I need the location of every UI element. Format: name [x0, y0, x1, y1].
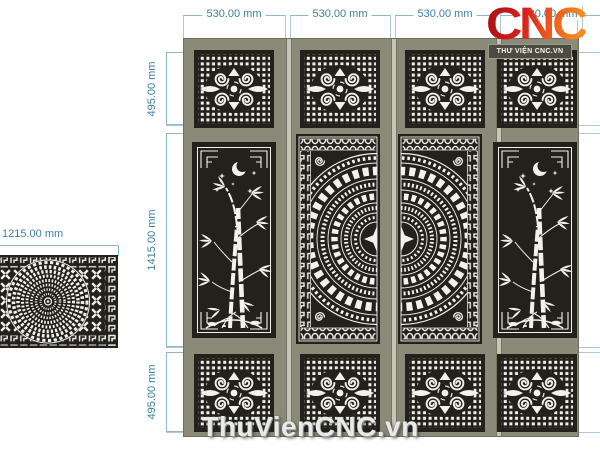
dimension-stub	[166, 52, 183, 53]
bamboo-panel-right	[493, 142, 577, 338]
dimension-stub	[166, 124, 183, 125]
dimension-label: 530.00 mm	[308, 8, 371, 20]
dimension-label-row2: 1415.00 mm	[146, 133, 160, 347]
drum-panel-left-half	[296, 134, 380, 344]
dimension-stub	[166, 346, 183, 347]
dimension-line-side	[0, 245, 119, 246]
grille-panel-top-4	[497, 50, 577, 128]
drum-panel-right-half	[398, 134, 482, 344]
dimension-label-row1: 495.00 mm	[146, 53, 160, 125]
grille-panel-bottom-4	[497, 354, 577, 432]
dimension-stub	[166, 133, 183, 134]
cnc-logo: CNC	[486, 0, 585, 47]
door-leaf-gap	[286, 39, 292, 436]
drawing-canvas: 530.00 mm 530.00 mm 530.00 mm 530.00 mm …	[0, 0, 600, 450]
dimension-top-3: 530.00 mm	[395, 8, 495, 24]
side-panel-preview	[0, 255, 118, 348]
dimension-label-side: 1215.00 mm	[2, 228, 63, 240]
door-leaf-gap	[391, 39, 397, 436]
dimension-line-row1	[166, 52, 167, 125]
grille-panel-top-3	[405, 50, 485, 128]
dimension-label: 530.00 mm	[413, 8, 476, 20]
grille-panel-top-2	[300, 50, 380, 128]
dimension-line-row3	[166, 352, 167, 432]
dimension-stub	[118, 245, 119, 256]
cnc-logo-badge: THƯ VIỆN CNC.VN	[488, 44, 572, 59]
dimension-stub	[166, 352, 183, 353]
dimension-label: 530.00 mm	[202, 8, 265, 20]
dimension-top-1: 530.00 mm	[183, 8, 285, 24]
bamboo-panel-left	[192, 142, 276, 338]
dimension-top-2: 530.00 mm	[290, 8, 390, 24]
dimension-line-row2	[166, 133, 167, 347]
grille-panel-top-1	[194, 50, 274, 128]
watermark-text: ThuVienCNC.vn	[175, 411, 445, 443]
dimension-label-row3: 495.00 mm	[146, 352, 160, 432]
